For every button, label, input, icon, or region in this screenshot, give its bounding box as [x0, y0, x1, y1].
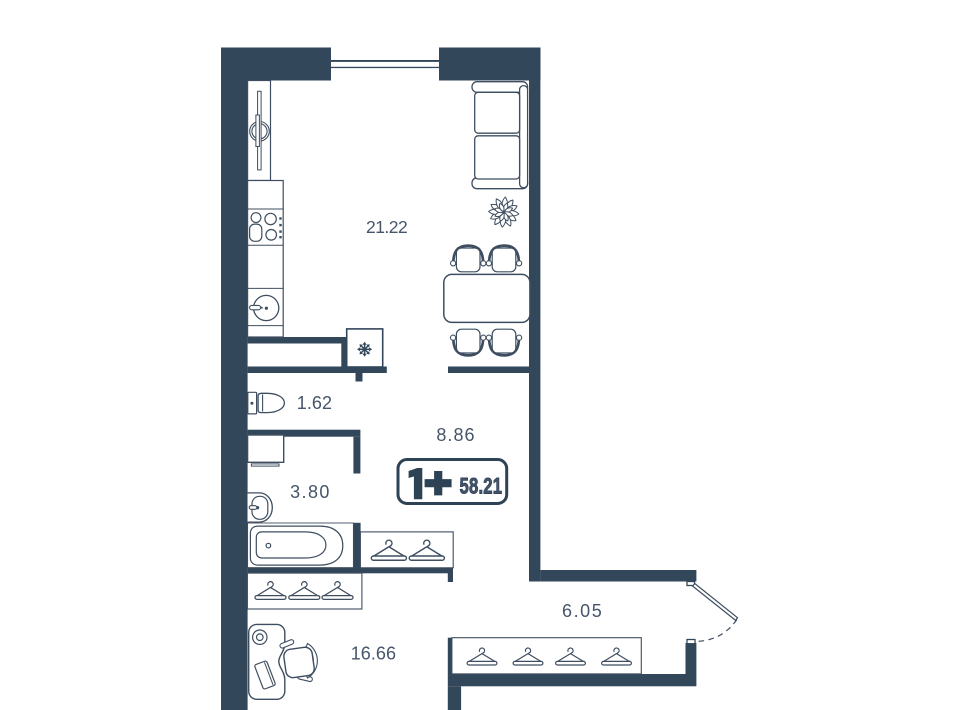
svg-text:8.86: 8.86: [436, 425, 475, 445]
svg-text:16.66: 16.66: [351, 644, 397, 664]
svg-text:21.22: 21.22: [366, 217, 408, 237]
svg-text:3.80: 3.80: [290, 482, 330, 502]
svg-text:1.62: 1.62: [297, 393, 333, 413]
svg-text:6.05: 6.05: [562, 601, 602, 621]
svg-text:58.21: 58.21: [460, 474, 503, 499]
